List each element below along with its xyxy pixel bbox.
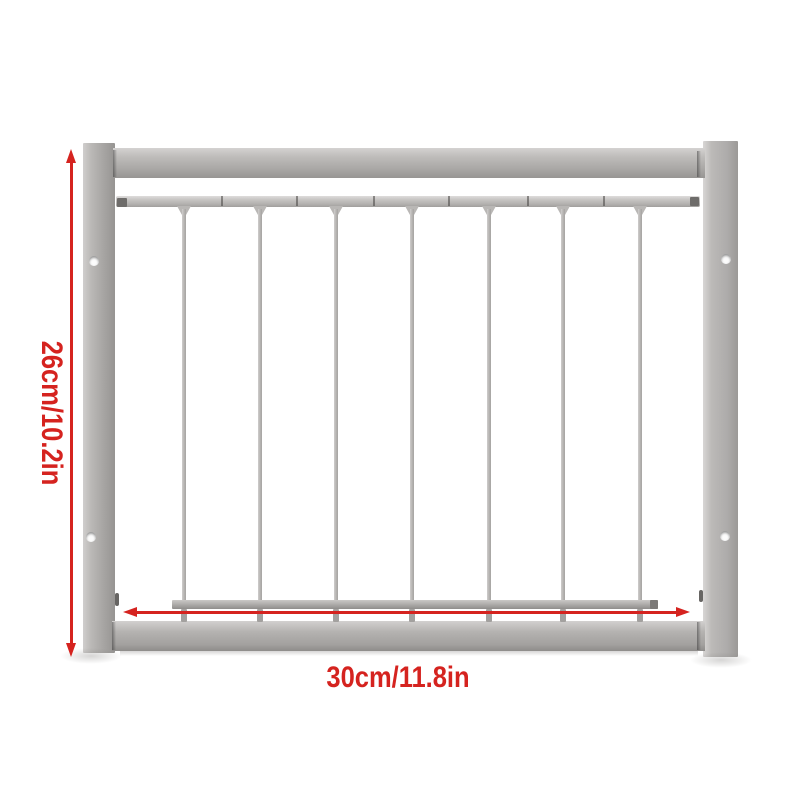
screw-hole [89, 256, 99, 266]
rail-seam [527, 196, 529, 206]
frame-corner-seam [697, 151, 701, 177]
screw-hole [721, 254, 731, 264]
height-dimension-line [70, 159, 73, 648]
frame-corner-seam [113, 150, 117, 177]
product-image: 26cm/10.2in 30cm/11.8in [0, 0, 800, 800]
gate-bar [334, 209, 338, 601]
gate-shadow [120, 651, 698, 656]
latch-mark [699, 590, 703, 602]
gate-bar [487, 209, 491, 601]
gate-left-post [83, 143, 115, 653]
inner-bottom-rail [172, 600, 658, 609]
left-arrowhead-icon [123, 607, 137, 617]
gate-bar [638, 209, 642, 601]
rail-seam [373, 196, 375, 206]
frame-corner-seam [697, 622, 701, 650]
gate-bar [561, 209, 565, 601]
up-arrowhead-icon [66, 149, 76, 163]
height-dimension-label: 26cm/10.2in [34, 341, 68, 486]
screw-hole [86, 532, 96, 542]
width-dimension-label: 30cm/11.8in [326, 661, 469, 695]
inner-bottom-rail-cap [650, 600, 658, 609]
gate-right-post [703, 141, 738, 657]
down-arrowhead-icon [66, 643, 76, 657]
right-arrowhead-icon [676, 607, 690, 617]
rail-seam [603, 196, 605, 206]
rail-seam [221, 196, 223, 206]
width-dimension-line [134, 611, 678, 614]
latch-mark [115, 593, 119, 606]
gate-bar [182, 209, 186, 601]
rail-seam [296, 196, 298, 206]
gate-top-rail [113, 148, 705, 178]
frame-corner-seam [112, 622, 116, 650]
inner-rail-right-cap [690, 197, 699, 206]
rail-seam [448, 196, 450, 206]
screw-hole [720, 531, 730, 541]
post-shadow [690, 652, 752, 668]
gate-bar [410, 209, 414, 601]
gate-bar [258, 209, 262, 601]
gate-bottom-rail [112, 621, 705, 651]
inner-rail-left-cap [117, 198, 127, 207]
